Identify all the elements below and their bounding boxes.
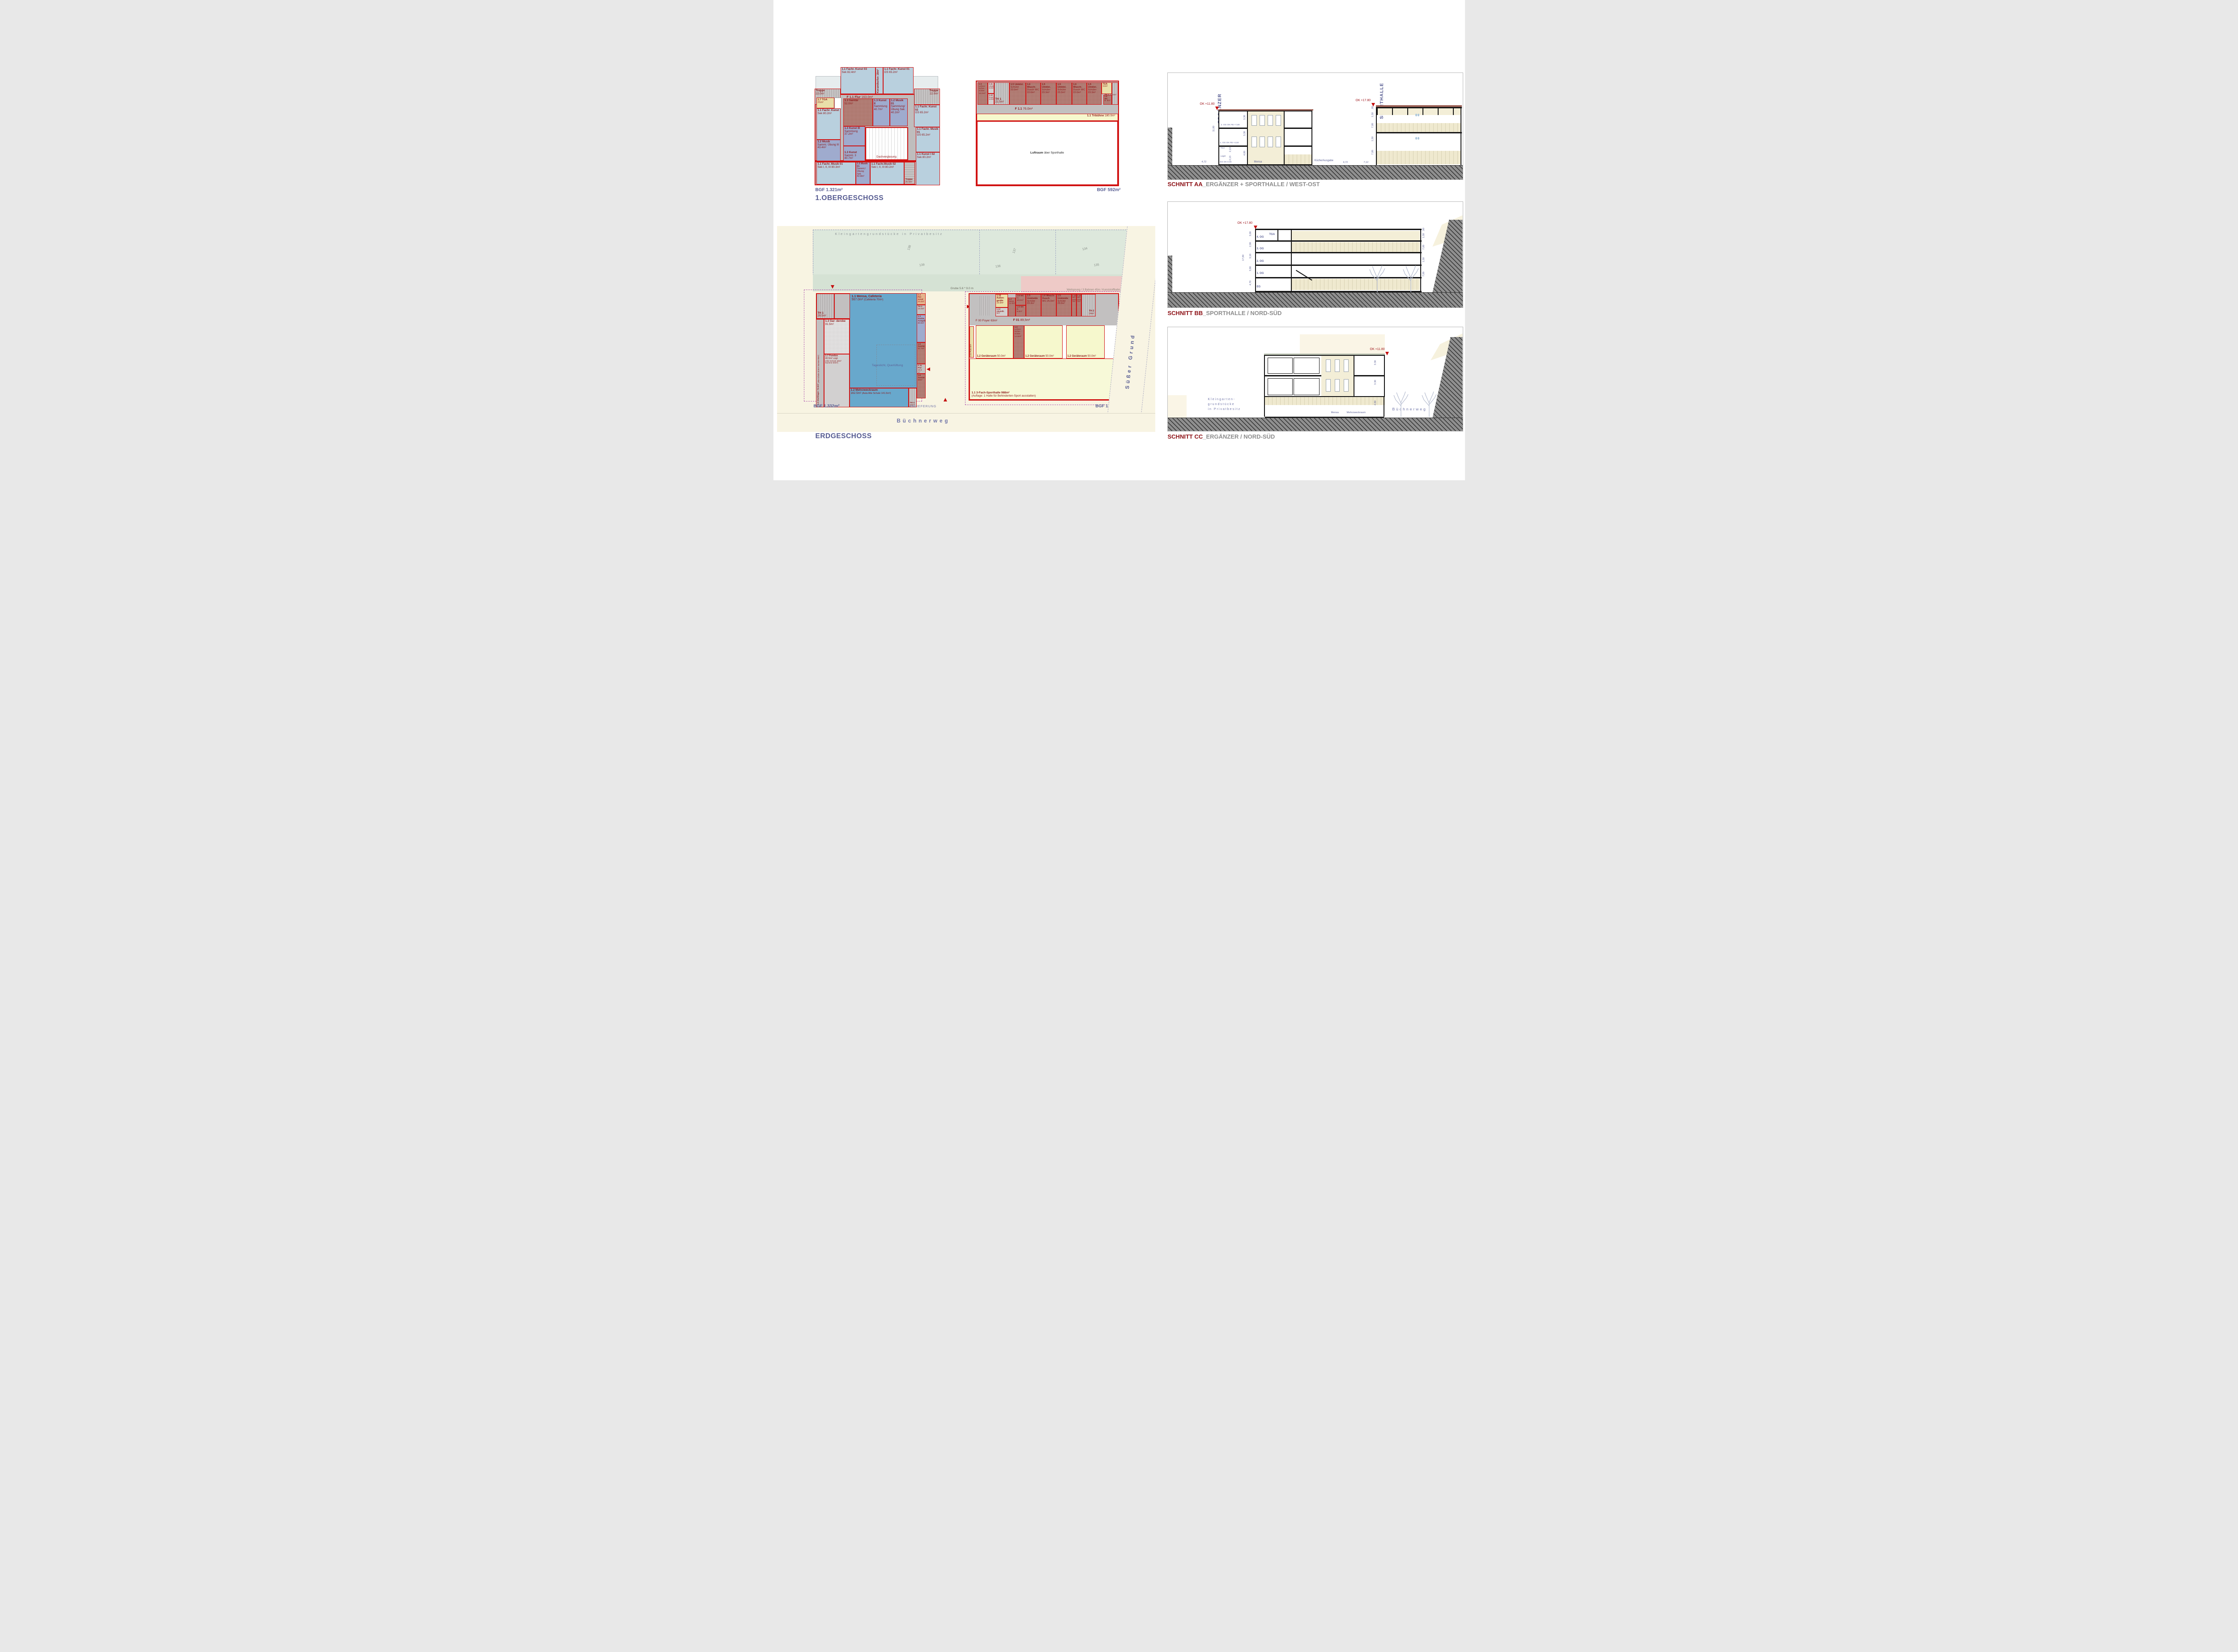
label-grube: Grube 5.6 * 9.0 m — [951, 287, 974, 290]
slab — [1255, 240, 1422, 242]
roof-line — [1264, 354, 1385, 355]
room-fachraum-musik-02: 1.1 Fachr.Musik 02Sek I, II, III 80.2m² — [870, 162, 904, 184]
tribuene: 1.1 Tribühne 180.0m² — [977, 114, 1118, 121]
room-wcd: 1.7WCD. 12.0m² — [1008, 298, 1016, 316]
room-wc-zusatz-2: 1.12WC- Zusa 7m² — [1076, 294, 1081, 316]
room-kunst-i-02: 1.1 Kunst I 02Sek 80.2m² — [916, 152, 940, 185]
terrain-cc — [1168, 418, 1463, 431]
elevator-shaft — [834, 98, 841, 109]
dim: 1,50 — [1422, 233, 1425, 238]
window-large — [1268, 378, 1293, 395]
bgf-erdgeschoss-left: BGF 1.332m² — [814, 404, 840, 409]
dim: 7,00 — [1371, 150, 1374, 155]
room-garderobe: 1.3 Gar- derobe91.5m² — [824, 319, 850, 354]
room-sporthalle: 1.1 3-Fach-Sporthalle 988m² (Auflage: 1 … — [970, 359, 1118, 400]
tree-icon — [1365, 264, 1390, 292]
building-sporthalle-eg: 1.10 Außen- geräte15.0m² 1.12 Abstellr. … — [969, 293, 1123, 404]
left-cream — [1168, 395, 1187, 418]
floor-4og: 4. OG — [1257, 236, 1264, 239]
street-buechnerweg — [777, 413, 1155, 432]
window — [1276, 137, 1281, 147]
eg-band — [1285, 154, 1311, 164]
room-umkleide-1: 1.5 Umklei.Schüler 22.0m² — [1009, 82, 1026, 105]
level-marker — [1385, 352, 1389, 355]
level-eg0: EG OK 0.00 — [1220, 161, 1232, 163]
plot-136: 136 — [995, 265, 1001, 269]
building-ergaenzer-eg: TH 129.5m² 1.1 Mensa, Cafeteria 567.0m² … — [816, 293, 926, 407]
dim: 3.30 — [1374, 360, 1377, 365]
floor-2og: 2. OG — [1257, 260, 1264, 263]
room-geraeteraum-1: 1.2 Geräteraum 50.0m² — [976, 325, 1013, 359]
kleingarten-area — [813, 230, 1149, 275]
plot-135: 135 — [1093, 263, 1099, 267]
room-kunst-samml3: 1.3 KunstSamml. 3 40.7m² — [843, 146, 865, 161]
luftraum: Luftraum über Sporthalle — [977, 121, 1118, 185]
label-mensa-aa: Mensa — [1254, 161, 1262, 163]
dim: 3,10 — [1249, 254, 1252, 259]
room-wasch-1: 1.6 Wasch-Dusch WC 22.0m² — [1026, 82, 1041, 105]
band — [1292, 242, 1420, 252]
dim: 1,50 — [1371, 112, 1374, 117]
level-og2: 2. OG OK FB +7,80 — [1221, 124, 1240, 126]
eg-band — [1264, 397, 1385, 405]
dim: 3,00 — [1249, 231, 1252, 236]
plan-og-sporthalle: 1.4Lehrer- Schie.- richter 15.0m² 1.11Ab… — [976, 81, 1121, 186]
room-wc-b: 1.9 WCB. 6m² — [1103, 95, 1112, 105]
room-musik-01-sammlung: 1.2 Musik 01Sammlung/ Übung Sek 40.2m² — [890, 98, 908, 126]
stair-th2-hall: TH 214m² — [1081, 294, 1096, 316]
window-slot — [1335, 379, 1340, 392]
label-mensa-cc: Mensa — [1331, 411, 1339, 414]
terrain-aa — [1168, 165, 1463, 180]
room-fachraum-musik-01-gs: 1.1 Fachr. Musik 01GS 65.2m² — [916, 127, 940, 152]
plot-divider — [979, 230, 980, 274]
section-building-sporthalle — [1376, 105, 1462, 165]
tga-wall — [1277, 229, 1278, 240]
room-stuhllager: 1.8 Stuhllager 72.6m² (Alte Schule 30.5m… — [816, 319, 824, 407]
room-fundus: 1.7 Fundus40.5m² zzgl.(Alte Schule 20m² … — [824, 354, 850, 407]
room-fachraum-kunst-01: 1.1 Fachr. Kunst 01GS 65.2m² — [883, 67, 914, 94]
ok-1180-cc: OK +11.80 — [1370, 348, 1385, 351]
hill-slope — [1433, 220, 1463, 292]
window — [1260, 115, 1265, 126]
label-mehrzweckraum-cc: Mehrzweckraum — [1347, 411, 1366, 414]
dim: 2,90 — [1249, 242, 1252, 247]
title-schnitt-bb: SCHNITT BB_SPORTHALLE / NORD-SÜD — [1168, 310, 1282, 316]
stair-th1-eg: TH 129.5m² — [816, 293, 835, 319]
room-wc-zusatz-1: 1.12WC- Zusa 7m² — [1072, 294, 1076, 316]
label-tga-aa: TGA — [1221, 147, 1225, 149]
dim: 3,30 — [1243, 115, 1246, 120]
room-kunst-2: 1.3 Kunst IISammlung 40.7m² — [873, 98, 890, 126]
room-aussengeraete: 1.10 Außen- geräte15.0m² — [995, 294, 1008, 307]
label-anlieferung: ANLIEFERUNG — [910, 405, 937, 408]
ok-1180-aa: OK +11.80 — [1200, 102, 1215, 106]
window — [1268, 137, 1273, 147]
label-kleingarten-cc: Kleingarten- grundstücke in Privatbesitz — [1208, 397, 1241, 412]
retaining-wall-bb — [1168, 256, 1172, 292]
label-foyer: F 00 Foyer 63m² — [976, 319, 998, 322]
dim: 1,50 — [1371, 137, 1374, 141]
label-kleingarten: Kleingartengrundstücke in Privatbesitz — [835, 232, 944, 236]
room-tga-og: 1.7 TGA 21m² — [816, 98, 834, 108]
lower-band — [1377, 151, 1461, 164]
stair-th3: TH 322m² — [909, 388, 917, 407]
dim: 4.80 — [1374, 401, 1377, 406]
dim-1180: 11,80 — [1213, 126, 1215, 132]
dim: 2,13 — [1229, 156, 1232, 161]
level-og1: 1. OG OK FB +4,50 — [1220, 142, 1239, 144]
entrance-marker-south — [944, 398, 947, 401]
stair-th2-eg: TH 218.0m² — [917, 305, 926, 315]
window-slot — [1335, 359, 1340, 372]
ok-1780-bb: OK +17.80 — [1238, 222, 1253, 225]
label-tga-bb: TGA — [1269, 233, 1275, 236]
room-sanitaer-527: 1.6 Sanitär52.7m² — [917, 342, 926, 364]
room-fachraum-musik-01: 1.1 Fachr. Musik 01Sek I, II, III 80.3m² — [816, 162, 856, 184]
plot-divider — [1055, 230, 1056, 274]
stair-top-right: Treppe22.0m² — [914, 89, 940, 105]
room-sanitaer-og: 1.3 Sanitär52.0m² — [843, 98, 873, 126]
dim: ,80 — [1422, 228, 1425, 231]
slab — [1255, 265, 1422, 266]
room-sanitaer-60: 1.6 Sanitär60m² — [917, 374, 926, 398]
dim: 4,70 — [1249, 281, 1252, 286]
dim-472b: 4,72 — [1343, 161, 1348, 164]
wall — [1354, 355, 1354, 397]
wall — [1255, 229, 1256, 292]
room-mehrzweckraum: 1.2 Mehrzweckraum 162.5m² (Aula Alte Sch… — [850, 388, 909, 407]
entrance-marker-north — [831, 285, 834, 289]
room-musik-sammlung-3: 1.2 MusikSamml. Übung III 43.4m² — [816, 140, 841, 161]
tree-icon — [1418, 390, 1441, 417]
floor-eg: EG — [1257, 286, 1261, 288]
floor-3og: 3. OG — [1257, 248, 1264, 250]
slab — [1255, 252, 1422, 253]
window-slot — [1344, 359, 1349, 372]
room-umkleide-2: 1.5 Umklei.Schüler 23.3m² — [1041, 82, 1056, 105]
entrance-marker-flur — [927, 367, 930, 371]
section-building-bb: TGA 4. OG 3. OG 2. OG 1. OG EG 3,00 2,90… — [1255, 229, 1422, 292]
dim: 4,80 — [1243, 151, 1246, 156]
wall — [1384, 397, 1385, 417]
room-lehrer-schiedsrichter-eg: 1.4Lehrer- Schie.- richter 14.8m² — [1013, 325, 1024, 359]
door-marks — [1415, 111, 1420, 113]
title-erdgeschoss: ERDGESCHOSS — [816, 432, 872, 440]
dim: 3,30 — [1243, 131, 1246, 136]
title-obergeschoss: 1.OBERGESCHOSS — [816, 194, 884, 202]
room-wc-h: 1.8 WCH. 10.0m² — [1016, 294, 1026, 305]
dim: 3.30 — [1374, 380, 1377, 385]
dim: 2,13 — [1229, 147, 1232, 152]
room-wasch-2: 1.6 Wasch-Dusch WC 22.0m² — [1072, 82, 1087, 105]
ok-1780-aa: OK +17.80 — [1356, 99, 1371, 102]
title-schnitt-cc: SCHNITT CC_ERGÄNZER / NORD-SÜD — [1168, 433, 1275, 440]
room-lehrer-schiedsrichter-og: 1.4Lehrer- Schie.- richter 15.0m² — [978, 82, 988, 105]
slab — [1255, 277, 1422, 278]
window — [1268, 115, 1273, 126]
section-building-ergaenzer: 2. OG OK FB +7,80 1. OG OK FB +4,50 TGA … — [1218, 111, 1312, 165]
band — [1292, 231, 1420, 240]
label-flur-hall: F 1.1 76.0m² — [1015, 107, 1033, 111]
mid-slab — [1376, 132, 1462, 133]
window — [1251, 115, 1257, 126]
wall — [1264, 397, 1265, 417]
slab — [1255, 229, 1422, 230]
room-umkleide-b: 1.5 UmkleideSchüler 23.0m² — [1056, 294, 1072, 316]
plan-erdgeschoss: Kleingartengrundstücke in Privatbesitz 1… — [777, 226, 1155, 432]
door-marks — [1415, 134, 1420, 137]
entry-stair-eg — [980, 296, 990, 316]
label-f01-hall: F 01 89,5m² — [1013, 319, 1030, 322]
section-cc: OK +11.80 Mensa Mehrzweckraum — [1167, 327, 1463, 431]
plan-obergeschoss: Terrasse Terrasse 1.1 Fachr. Kunst 03Sek… — [813, 66, 944, 185]
section-aa: KITA ERGÄNZER SPORTHALLE OK +11.80 OK +1… — [1167, 73, 1463, 180]
window — [1251, 137, 1257, 147]
room-abstell: 1.11Abstell. 6.0m² — [988, 82, 994, 94]
terrain-bb — [1168, 292, 1463, 308]
section-building-cc: Mensa Mehrzweckraum 3.30 3.30 4.80 — [1264, 355, 1385, 418]
window-slot — [1344, 379, 1349, 392]
plot-139: 139 — [919, 263, 925, 267]
stair-bottom: Treppe20.0m² — [904, 162, 915, 184]
room-personal: 1.4 Per- sonal10.4m² — [917, 293, 926, 305]
bgf-obergeschoss: BGF 1.321m² — [816, 188, 843, 192]
tree-icon — [1398, 264, 1423, 292]
bgf-og-sporthalle: BGF 592m² — [1086, 188, 1121, 192]
dim: 7,00 — [1422, 245, 1425, 250]
roof-line — [1218, 109, 1313, 111]
room-pumi-eg: 1.11 Pumi 5m² — [970, 326, 974, 358]
tree-icon — [1389, 390, 1413, 417]
label-th1b: TH 1 17.0m² — [1105, 94, 1118, 96]
wall — [1291, 229, 1292, 292]
room-pumi-og: 1.12Pumi 6.0m² — [988, 94, 994, 105]
label-tageslicht: Tageslicht, Querlüftung — [858, 364, 917, 367]
window-large — [1294, 358, 1320, 374]
stair-th1-b — [1112, 82, 1118, 105]
room-geraeteraum-3: 1.2 Geräteraum 50.0m² — [1066, 325, 1105, 359]
room-fachraum-kunst-03: 1.1 Fachr. Kunst 03Sek 82.4m² — [841, 67, 876, 94]
room-kunst-3: 1.3 Kunst IIISammlung 37.2m² — [843, 126, 865, 146]
room-umkleide-a: 1.5 UmkleideSchüler 23.3m² — [1026, 294, 1041, 316]
window-slot — [1326, 379, 1331, 392]
dim-total: 17,80 — [1242, 255, 1245, 261]
wall — [1376, 107, 1377, 165]
window-large — [1268, 358, 1293, 374]
window-large — [1294, 378, 1320, 395]
room-wc-b-eg: 1.9 WCB. 6.0m² — [1016, 305, 1026, 316]
label-lager: Lager — [1221, 155, 1226, 158]
room-umkleide-4: 1.5 Umklei.Schüler 23.3m² — [1087, 82, 1102, 105]
dim: ,80 — [1371, 106, 1374, 110]
dim-712: 7,12 — [1364, 161, 1369, 164]
room-fachraum-kunst-02: 1.1 Fachr. Kunst 02GS 65.2m² — [914, 105, 940, 127]
window — [1276, 115, 1281, 126]
stair-th1-a: TH 121.5m² — [994, 82, 1009, 105]
label-buechnerweg: Büchnerweg — [897, 418, 950, 424]
room-kueche: 1.3 Küche, Ausgabe80.8m² — [917, 315, 926, 342]
kita-wall — [1168, 128, 1172, 165]
wall — [1461, 107, 1462, 165]
room-fachraum-kunst-sek: 1.1 Fachr. KunstSek 80.2m² — [816, 108, 841, 140]
room-keramikofen: Keramikofen 18m² — [876, 67, 883, 94]
eg-space — [1265, 405, 1384, 418]
room-wasch-eg: 1.6 Wasch- DuschWC 25.0m² — [1041, 294, 1056, 316]
room-umkleide-3: 1.5 Umklei.Schüler 23.3m² — [1056, 82, 1072, 105]
gallery-band — [1377, 123, 1461, 132]
room-tga-hall: TGA 11m² — [1102, 82, 1112, 94]
title-schnitt-aa: SCHNITT AA_ERGÄNZER + SPORTHALLE / WEST-… — [1168, 181, 1320, 188]
dim: 1,50 — [1422, 257, 1425, 262]
floor-1og: 1. OG — [1257, 272, 1264, 275]
dim: 3,80 — [1249, 266, 1252, 271]
room-musik-01-uebung: 1.2 Musik 01Samml./Übung Sek 42.8m² — [856, 162, 870, 184]
weitsprung-track: Weitsprung / 3 Bahnen 45m / Kunststoffba… — [1021, 276, 1122, 292]
room-abstellraum: 1.12 Abstellr. 9m² — [995, 307, 1008, 316]
drawing-sheet: Terrasse Terrasse 1.1 Fachr. Kunst 03Sek… — [773, 0, 1465, 480]
dachverglasung: Dachverglasung — [865, 127, 908, 160]
section-bb: OK +17.80 TGA 4. OG 3. OG 2. OG 1. OG EG — [1167, 201, 1463, 308]
dim-472: 4,72 — [1202, 161, 1207, 163]
room-f01-flur: F 01 Flur18.0 m² — [917, 364, 926, 374]
dim: 7,00 — [1371, 123, 1374, 128]
window-slot — [1326, 359, 1331, 372]
label-kueche-aa: Küche/Ausgabe — [1315, 159, 1333, 162]
window — [1260, 137, 1265, 147]
room-geraeteraum-2: 1.2 Geräteraum 50.0m² — [1024, 325, 1063, 359]
